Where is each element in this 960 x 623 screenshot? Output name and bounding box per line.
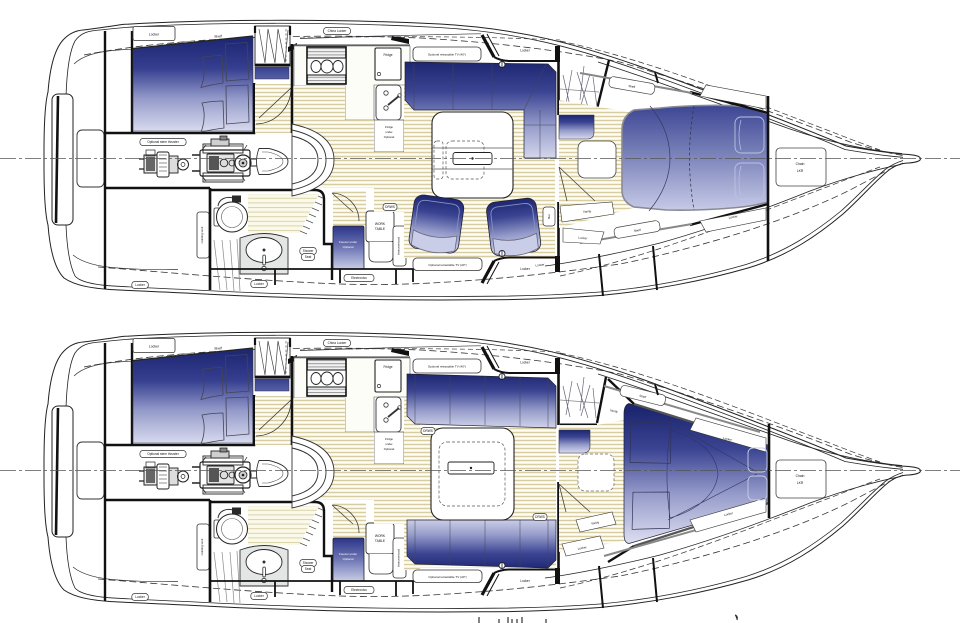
svg-text:Shelf: Shelf — [214, 346, 222, 351]
svg-text:Locker: Locker — [149, 345, 160, 349]
svg-text:Shower: Shower — [303, 561, 315, 565]
svg-text:DRWS: DRWS — [535, 515, 545, 519]
svg-text:Optional: Optional — [384, 135, 395, 139]
svg-text:Locker: Locker — [520, 361, 531, 365]
svg-text:Fridge: Fridge — [383, 53, 392, 57]
svg-text:Electronics: Electronics — [351, 276, 367, 280]
svg-text:Electronics: Electronics — [351, 588, 367, 592]
svg-text:Holding tank: Holding tank — [200, 538, 204, 555]
svg-text:China Locker: China Locker — [328, 341, 348, 345]
svg-text:China Locker: China Locker — [328, 29, 348, 33]
svg-text:Fridge: Fridge — [383, 365, 392, 369]
svg-text:Seat: Seat — [305, 567, 312, 571]
svg-text:Locker: Locker — [135, 283, 146, 287]
svg-text:Optional retractable TV (40°): Optional retractable TV (40°) — [428, 263, 466, 267]
svg-text:Instrument pod: Instrument pod — [397, 549, 401, 567]
svg-text:Instrument pod: Instrument pod — [397, 237, 401, 255]
svg-text:Fridge: Fridge — [385, 437, 393, 441]
svg-text:WORK: WORK — [375, 222, 386, 226]
svg-text:Holding tank: Holding tank — [200, 226, 204, 243]
svg-text:Optional retractable TV (40°): Optional retractable TV (40°) — [428, 53, 466, 57]
svg-text:Freezer under: Freezer under — [339, 552, 357, 556]
svg-text:Optional: Optional — [343, 557, 354, 561]
svg-text:Optional retractable TV (40°): Optional retractable TV (40°) — [428, 575, 466, 579]
svg-text:DRWS: DRWS — [423, 429, 433, 433]
svg-text:Shower: Shower — [303, 249, 315, 253]
svg-text:Optional: Optional — [384, 447, 395, 451]
svg-text:Optional stern thruster: Optional stern thruster — [147, 452, 179, 456]
svg-text:Locker: Locker — [149, 33, 160, 37]
svg-text:Chain: Chain — [796, 474, 805, 478]
svg-text:WORK: WORK — [375, 534, 386, 538]
svg-text:Optional retractable TV (40°): Optional retractable TV (40°) — [428, 365, 466, 369]
svg-text:TABLE: TABLE — [375, 227, 386, 231]
svg-text:Locker: Locker — [254, 282, 265, 286]
svg-text:Bar: Bar — [547, 214, 551, 219]
svg-text:Locker: Locker — [520, 49, 531, 53]
svg-text:under: under — [385, 442, 392, 446]
svg-text:Seat: Seat — [305, 255, 312, 259]
svg-text:Locker: Locker — [135, 595, 146, 599]
svg-text:Locker: Locker — [520, 267, 531, 271]
svg-text:LKR: LKR — [797, 169, 804, 173]
svg-text:Optional stern thruster: Optional stern thruster — [147, 140, 179, 144]
svg-text:DRWS: DRWS — [385, 205, 395, 209]
svg-text:LKR: LKR — [797, 481, 804, 485]
svg-text:Optional: Optional — [343, 245, 354, 249]
svg-text:TABLE: TABLE — [375, 539, 386, 543]
svg-text:under: under — [385, 130, 392, 134]
svg-text:Locker: Locker — [578, 236, 587, 241]
svg-text:Locker: Locker — [254, 594, 265, 598]
svg-text:Fridge: Fridge — [385, 125, 393, 129]
svg-text:Vanity: Vanity — [583, 209, 592, 214]
svg-text:Chain: Chain — [796, 162, 805, 166]
svg-text:Freezer under: Freezer under — [339, 240, 357, 244]
svg-text:Shelf: Shelf — [214, 34, 222, 39]
svg-text:Locker: Locker — [520, 579, 531, 583]
